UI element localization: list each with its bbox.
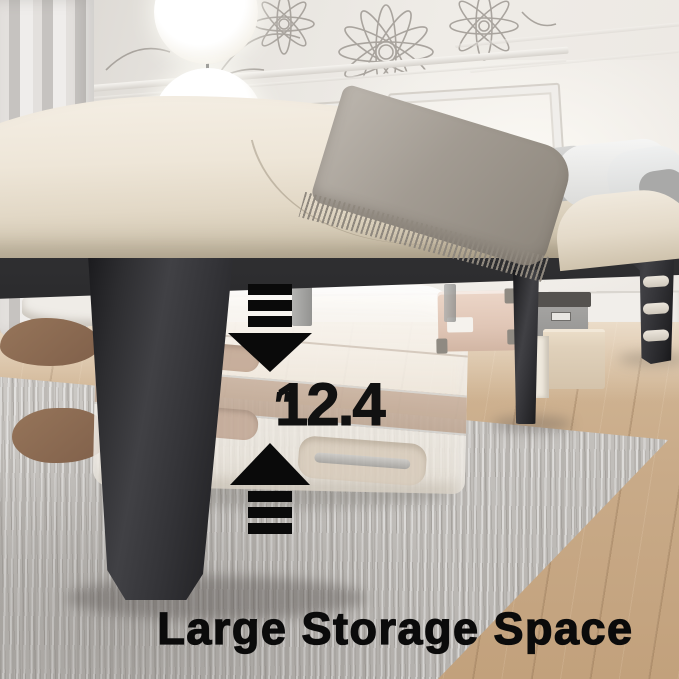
box-lid	[533, 292, 591, 307]
leg-slot	[643, 329, 669, 342]
storage-ottoman	[543, 329, 605, 389]
measurement-value: 12.4	[275, 372, 384, 438]
caption-text: Large Storage Space	[118, 603, 673, 655]
bed-leg-middle	[513, 270, 539, 424]
floor-decor-blob	[0, 318, 100, 366]
leg-slot	[643, 302, 669, 315]
measurement-unit: ″	[275, 372, 291, 438]
product-photo: 12.4″ Large Storage Space	[0, 0, 679, 679]
arrow-down-icon	[228, 284, 312, 372]
leg-slot	[643, 275, 669, 288]
arrow-up-icon	[230, 443, 310, 534]
suitcase-grip-bar	[314, 452, 410, 469]
box-corner-bracket	[436, 339, 447, 354]
center-support-leg	[444, 284, 456, 322]
box-label	[551, 312, 571, 321]
